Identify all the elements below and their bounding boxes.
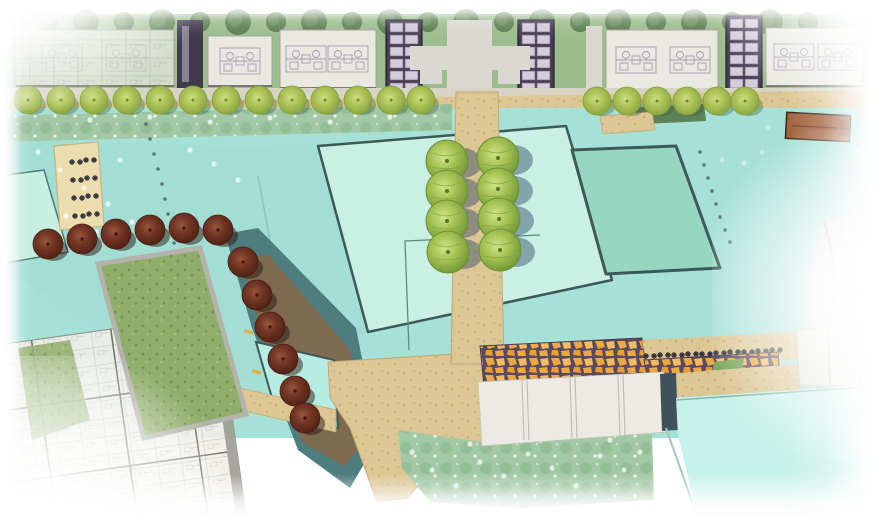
floating-deck [785,112,850,141]
water-sparkle [235,177,240,182]
cross-path-stub [420,70,442,84]
stepping-stone [152,152,156,156]
gravel-dot [851,319,854,322]
water-ripple [855,147,860,152]
stepping-stone [172,241,176,245]
water-sparkle [621,467,626,472]
stepping-stone [718,215,722,219]
site-plan-svg [0,0,882,526]
water-sparkle [187,147,192,152]
hedge-blob [266,12,286,32]
water-sparkle [63,213,68,218]
stair-tower [177,20,203,88]
water-sparkle [597,453,602,458]
water-sparkle [387,114,392,119]
gravel-dot [855,249,858,252]
hedge-blob [225,9,251,35]
water-sparkle [267,115,272,120]
site-plan-illustration [0,0,882,526]
cross-path-arm [410,46,530,70]
step-wall [660,373,678,431]
side-path [586,26,602,92]
water-sparkle [117,157,122,162]
hedge-blob [38,12,58,32]
water-sparkle [81,185,86,190]
hedge-blob [494,12,514,32]
water-sparkle [429,467,434,472]
water-sparkle [637,449,642,454]
southeast-pool [676,384,882,526]
water-sparkle [467,441,472,446]
water-sparkle [35,149,40,154]
stepping-stone [714,202,718,206]
water-sparkle [607,437,612,442]
stepping-stone [702,163,706,167]
water-sparkle [105,201,110,206]
stepping-stone [723,228,727,232]
water-sparkle [573,483,578,488]
water-sparkle [129,219,134,224]
stepping-stone [144,122,148,126]
stepping-stone [728,240,732,244]
stair-tower-glazing [182,26,189,82]
stepping-stone [148,137,152,141]
cross-path-stub [498,70,520,84]
stepping-stone [163,197,167,201]
stepping-stone [710,189,714,193]
water-sparkle [207,119,212,124]
sidewalk [796,324,882,386]
building-green-tint [16,30,174,86]
stepping-stone [166,212,170,216]
water-sparkle [57,167,62,172]
water-sparkle [453,483,458,488]
stepping-stone [156,167,160,171]
water-sparkle [477,459,482,464]
water-sparkle [501,473,506,478]
hedge-blob [114,12,134,32]
stepping-stone [160,182,164,186]
water-ripple [741,160,746,165]
water-sparkle [409,449,414,454]
water-sparkle [327,119,332,124]
water-ripple [759,149,764,154]
stepping-stone [698,150,702,154]
stepping-stone [706,176,710,180]
water-sparkle [525,451,530,456]
gravel-dot [863,289,866,292]
water-sparkle [87,117,92,122]
deck-notch [840,120,851,137]
water-sparkle [549,465,554,470]
water-ripple [719,157,724,162]
water-sparkle [147,114,152,119]
hedge-blob [646,12,666,32]
water-ripple [765,124,770,129]
water-sparkle [211,161,216,166]
trellis-pergola [726,16,762,90]
hedge-blob [342,12,362,32]
